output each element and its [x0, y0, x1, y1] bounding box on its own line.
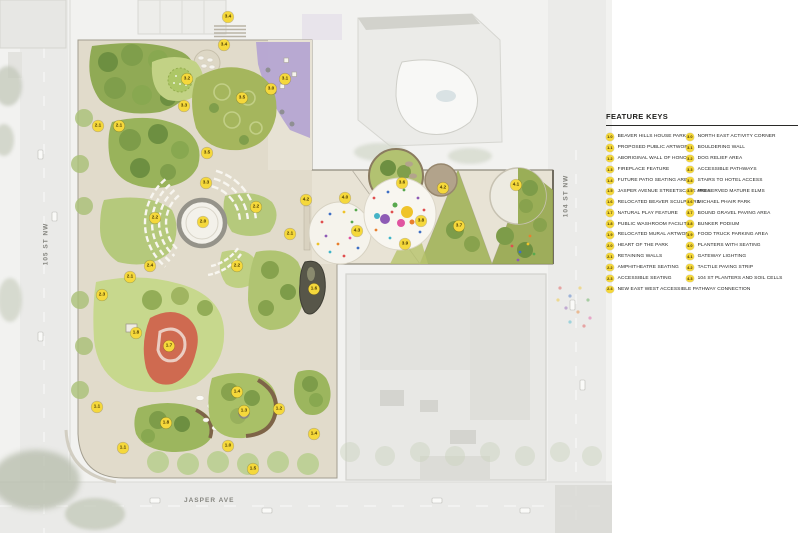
legend-key-badge: 3.9: [686, 231, 694, 239]
preserved-elms-lawn: [192, 67, 277, 150]
legend-item-label: NATURAL PLAY FEATURE: [618, 211, 678, 216]
hotel-building: [358, 14, 502, 146]
legend-item: 1.4FUTURE PATIO SEATING AREA: [606, 177, 686, 185]
legend-item-label: PUBLIC WASHROOM FACILITY: [618, 222, 690, 227]
legend-item-label: BEAVER HILLS HOUSE PARK: [618, 134, 687, 139]
legend-item: 3.4STAIRS TO HOTEL ACCESS: [686, 177, 798, 185]
legend-key-badge: 1.0: [606, 133, 614, 141]
legend-key-badge: 3.1: [686, 144, 694, 152]
street-label-jasper-ave: JASPER AVE: [184, 497, 234, 504]
legend-item: 3.9FOOD TRUCK PARKING AREA: [686, 231, 798, 239]
legend-column-1: 1.0BEAVER HILLS HOUSE PARK1.1PROPOSED PU…: [606, 133, 686, 296]
legend-key-badge: 2.0: [606, 242, 614, 250]
legend-key-badge: 3.3: [686, 166, 694, 174]
legend-item: 1.1PROPOSED PUBLIC ARTWORK: [606, 144, 686, 152]
legend-item: 3.6MICHAEL PHAIR PARK: [686, 198, 798, 206]
legend-key-badge: 2.2: [606, 264, 614, 272]
legend-key-badge: 3.4: [686, 177, 694, 185]
legend-item-label: ABORIGINAL WALL OF HONOUR: [618, 156, 694, 161]
legend-item: 4.2TACTILE PAVING STRIP: [686, 264, 798, 272]
legend-key-badge: 1.8: [606, 220, 614, 228]
legend-item: 2.0HEART OF THE PARK: [606, 242, 686, 250]
legend-key-badge: 2.4: [606, 286, 614, 294]
legend-item: 1.9RELOCATED MURAL ARTWORK: [606, 231, 686, 239]
legend-item-label: RETAINING WALLS: [618, 254, 663, 259]
legend-item: 1.5JASPER AVENUE STREETSCAPE AREA: [606, 187, 686, 195]
legend-item: 3.0NORTH EAST ACTIVITY CORNER: [686, 133, 798, 141]
legend-item-label: TACTILE PAVING STRIP: [698, 265, 754, 270]
legend-item: 2.1RETAINING WALLS: [606, 253, 686, 261]
legend-item: 2.3ACCESSIBLE SEATING: [606, 275, 686, 283]
legend-item: 1.6RELOCATED BEAVER SCULPTURE: [606, 198, 686, 206]
legend-item-label: NEW EAST WEST ACCESSIBLE PATHWAY CONNECT…: [618, 287, 751, 292]
building-top-center: [138, 0, 226, 34]
legend-item-label: HEART OF THE PARK: [618, 243, 669, 248]
legend-key-badge: 1.9: [606, 231, 614, 239]
legend-item-label: PRESERVED MATURE ELMS: [698, 189, 765, 194]
legend-key-badge: 3.7: [686, 209, 694, 217]
legend-key-badge: 3.0: [686, 133, 694, 141]
legend-key-badge: 1.1: [606, 144, 614, 152]
legend-key-badge: 2.3: [606, 275, 614, 283]
legend-item: 3.3ACCESSIBLE PATHWAYS: [686, 166, 798, 174]
legend-key-badge: 4.0: [686, 242, 694, 250]
legend-item: 2.2AMPHITHEATRE SEATING: [606, 264, 686, 272]
legend-item: 3.5PRESERVED MATURE ELMS: [686, 187, 798, 195]
legend-key-badge: 3.6: [686, 198, 694, 206]
bunker-podium: [425, 164, 457, 196]
legend-item: 4.1GATEWAY LIGHTING: [686, 253, 798, 261]
legend-item: 4.0PLANTERS WITH SEATING: [686, 242, 798, 250]
legend-item-label: DOG RELIEF AREA: [698, 156, 743, 161]
legend-item-label: PROPOSED PUBLIC ARTWORK: [618, 145, 692, 150]
legend-item-label: BOULDERING WALL: [698, 145, 745, 150]
legend-key-badge: 4.2: [686, 264, 694, 272]
legend-item-label: BUNKER PODIUM: [698, 222, 740, 227]
washroom-structure: [126, 324, 137, 332]
legend-key-badge: 3.2: [686, 155, 694, 163]
street-label-105-st-nw: 105 ST NW: [43, 223, 50, 266]
legend-item-label: BOUND GRAVEL PAVING AREA: [698, 211, 771, 216]
legend-key-badge: 3.8: [686, 220, 694, 228]
legend-key-badge: 4.3: [686, 275, 694, 283]
legend-item-label: NORTH EAST ACTIVITY CORNER: [698, 134, 776, 139]
legend-key-badge: 2.1: [606, 253, 614, 261]
street-label-104-st-nw: 104 ST NW: [563, 175, 570, 218]
legend-item: 1.3FIREPLACE FEATURE: [606, 166, 686, 174]
legend-item-label: FIREPLACE FEATURE: [618, 167, 670, 172]
legend-item-label: AMPHITHEATRE SEATING: [618, 265, 679, 270]
legend-item-label: 104 ST PLANTERS AND SOIL CELLS: [698, 276, 783, 281]
legend-item: 2.4NEW EAST WEST ACCESSIBLE PATHWAY CONN…: [606, 285, 686, 293]
legend-item: 1.7NATURAL PLAY FEATURE: [606, 209, 686, 217]
legend-key-badge: 1.5: [606, 188, 614, 196]
legend-item: 4.3104 ST PLANTERS AND SOIL CELLS: [686, 275, 798, 283]
legend-item: 3.7BOUND GRAVEL PAVING AREA: [686, 209, 798, 217]
legend-item: 3.1BOULDERING WALL: [686, 144, 798, 152]
legend-key-badge: 4.1: [686, 253, 694, 261]
legend-key-badge: 3.5: [686, 188, 694, 196]
legend-item-label: ACCESSIBLE SEATING: [618, 276, 672, 281]
legend-item-label: GATEWAY LIGHTING: [698, 254, 747, 259]
legend-column-2: 3.0NORTH EAST ACTIVITY CORNER3.1BOULDERI…: [686, 133, 798, 285]
legend-item-label: RELOCATED MURAL ARTWORK: [618, 232, 693, 237]
strip-east-circle: [490, 168, 546, 224]
legend-key-badge: 1.7: [606, 209, 614, 217]
legend-item-label: MICHAEL PHAIR PARK: [698, 200, 751, 205]
feature-keys-legend: FEATURE KEYS 1.0BEAVER HILLS HOUSE PARK1…: [606, 112, 798, 296]
legend-key-badge: 1.6: [606, 198, 614, 206]
legend-item: 1.8PUBLIC WASHROOM FACILITY: [606, 220, 686, 228]
site-plan-canvas: 105 ST NW 104 ST NW JASPER AVE 3.43.43.2…: [0, 0, 800, 533]
lawn-east-mid: [248, 250, 304, 330]
legend-key-badge: 1.3: [606, 166, 614, 174]
building-east: [346, 274, 546, 480]
legend-item-label: FOOD TRUCK PARKING AREA: [698, 232, 769, 237]
legend-item: 1.0BEAVER HILLS HOUSE PARK: [606, 133, 686, 141]
legend-item-label: FUTURE PATIO SEATING AREA: [618, 178, 691, 183]
legend-item-label: ACCESSIBLE PATHWAYS: [698, 167, 757, 172]
legend-item: 3.2DOG RELIEF AREA: [686, 155, 798, 163]
mound-center-south: [208, 373, 276, 438]
legend-item: 3.8BUNKER PODIUM: [686, 220, 798, 228]
legend-title: FEATURE KEYS: [606, 112, 798, 121]
legend-key-badge: 1.2: [606, 155, 614, 163]
legend-key-badge: 1.4: [606, 177, 614, 185]
legend-divider: [606, 125, 798, 126]
legend-item-label: STAIRS TO HOTEL ACCESS: [698, 178, 763, 183]
legend-item-label: PLANTERS WITH SEATING: [698, 243, 761, 248]
legend-item: 1.2ABORIGINAL WALL OF HONOUR: [606, 155, 686, 163]
heart-of-park-plaza: [179, 200, 225, 246]
